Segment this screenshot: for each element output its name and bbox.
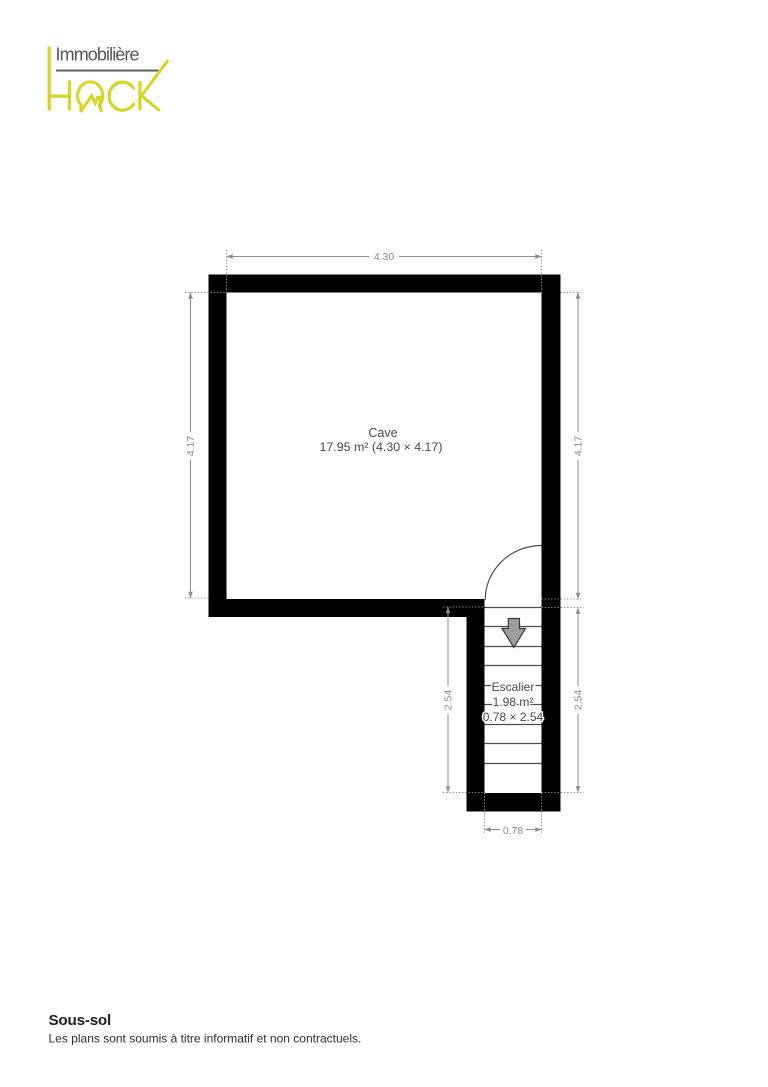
svg-text:4.17: 4.17 (186, 436, 197, 456)
svg-text:4.17: 4.17 (574, 436, 585, 456)
svg-text:1.98 m²: 1.98 m² (493, 695, 534, 709)
svg-text:2.54: 2.54 (574, 690, 585, 710)
svg-text:0.78 × 2.54: 0.78 × 2.54 (483, 710, 544, 724)
svg-text:17.95 m² (4.30 × 4.17): 17.95 m² (4.30 × 4.17) (320, 440, 443, 454)
svg-text:Les plans sont soumis à titre: Les plans sont soumis à titre informatif… (49, 1032, 362, 1046)
svg-text:4.30: 4.30 (374, 252, 394, 263)
svg-text:Escalier: Escalier (492, 680, 535, 694)
svg-text:Immobilière: Immobilière (56, 45, 140, 65)
svg-text:2.54: 2.54 (444, 690, 455, 710)
svg-text:0.78: 0.78 (503, 826, 523, 837)
svg-text:Sous-sol: Sous-sol (49, 1012, 112, 1029)
svg-text:Cave: Cave (368, 426, 397, 440)
